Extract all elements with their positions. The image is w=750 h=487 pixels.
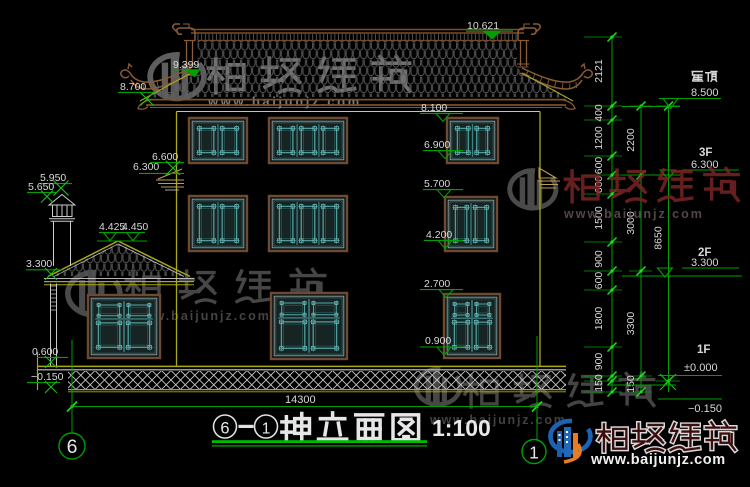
svg-text:4.450: 4.450: [122, 221, 148, 233]
svg-text:1F: 1F: [697, 344, 710, 356]
svg-text:150: 150: [593, 374, 605, 392]
svg-text:600: 600: [593, 272, 605, 290]
svg-text:www.baijunjz.com: www.baijunjz.com: [563, 207, 704, 221]
svg-text:6: 6: [220, 420, 229, 438]
svg-text:2121: 2121: [593, 59, 605, 83]
svg-text:2.700: 2.700: [424, 278, 450, 290]
svg-text:3300: 3300: [625, 312, 637, 336]
svg-text:1: 1: [262, 421, 271, 438]
svg-text:6.300: 6.300: [691, 159, 719, 171]
svg-text:1800: 1800: [593, 307, 605, 331]
svg-text:6.300: 6.300: [133, 161, 159, 173]
svg-text:−0.150: −0.150: [31, 371, 64, 383]
svg-text:1200: 1200: [593, 126, 605, 150]
svg-text:400: 400: [593, 104, 605, 122]
svg-text:8.100: 8.100: [421, 102, 447, 114]
svg-text:3.300: 3.300: [26, 258, 52, 270]
svg-text:10.621: 10.621: [467, 20, 499, 32]
svg-text:www.baijunjz.com: www.baijunjz.com: [590, 452, 726, 468]
svg-text:9.399: 9.399: [173, 59, 199, 71]
svg-text:3.300: 3.300: [691, 257, 719, 269]
svg-text:6: 6: [67, 436, 78, 458]
svg-text:−0.150: −0.150: [688, 403, 722, 415]
svg-text:8.500: 8.500: [691, 87, 719, 99]
svg-text:1:100: 1:100: [432, 415, 491, 441]
svg-text:150: 150: [625, 375, 637, 393]
svg-text:5.700: 5.700: [424, 178, 450, 190]
svg-text:1: 1: [529, 443, 539, 463]
svg-text:4.200: 4.200: [426, 229, 452, 241]
svg-text:2200: 2200: [625, 128, 637, 152]
svg-text:±0.000: ±0.000: [684, 362, 718, 374]
svg-text:600: 600: [593, 157, 605, 175]
svg-text:6.900: 6.900: [424, 139, 450, 151]
svg-text:14300: 14300: [285, 394, 316, 406]
svg-text:8.700: 8.700: [120, 81, 146, 93]
svg-text:0.900: 0.900: [425, 335, 451, 347]
svg-text:900: 900: [593, 250, 605, 268]
svg-text:8650: 8650: [653, 226, 665, 250]
svg-text:3F: 3F: [699, 147, 712, 159]
svg-text:900: 900: [593, 353, 605, 371]
